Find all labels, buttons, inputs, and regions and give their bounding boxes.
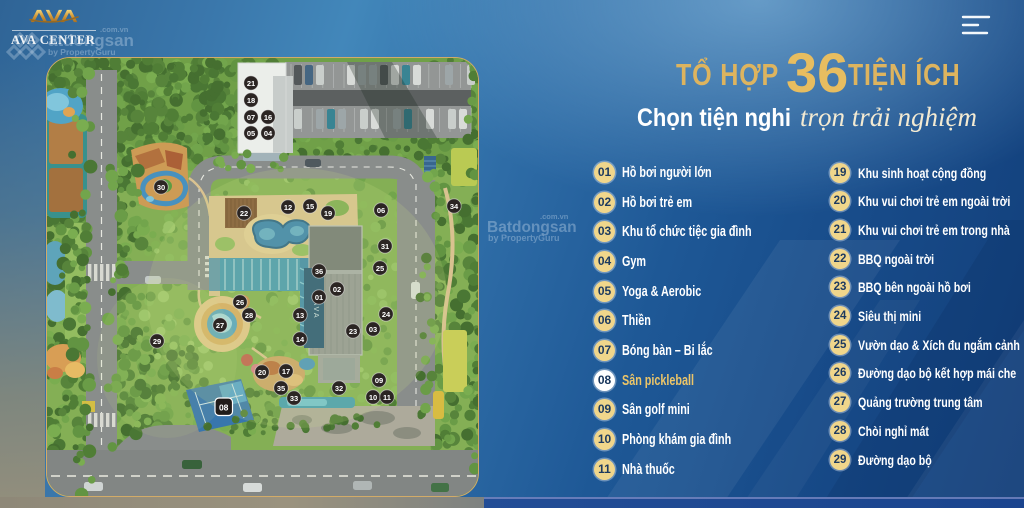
svg-text:35: 35	[276, 384, 284, 393]
svg-text:04: 04	[263, 129, 272, 138]
svg-text:14: 14	[295, 335, 304, 344]
svg-text:17: 17	[281, 367, 289, 376]
svg-text:16: 16	[263, 113, 271, 122]
svg-text:12: 12	[283, 203, 291, 212]
svg-text:07: 07	[246, 113, 254, 122]
svg-text:20: 20	[257, 368, 265, 377]
svg-text:34: 34	[449, 202, 458, 211]
svg-text:10: 10	[368, 393, 376, 402]
svg-text:30: 30	[156, 183, 164, 192]
svg-text:01: 01	[314, 293, 322, 302]
svg-text:36: 36	[314, 267, 322, 276]
svg-text:24: 24	[381, 310, 390, 319]
svg-text:21: 21	[246, 79, 254, 88]
svg-text:09: 09	[374, 376, 382, 385]
svg-text:15: 15	[305, 202, 313, 211]
svg-text:18: 18	[246, 96, 254, 105]
svg-text:33: 33	[289, 394, 297, 403]
svg-text:05: 05	[246, 129, 254, 138]
svg-text:26: 26	[235, 298, 243, 307]
svg-text:19: 19	[323, 209, 331, 218]
svg-text:31: 31	[380, 242, 388, 251]
svg-text:27: 27	[215, 321, 223, 330]
svg-text:28: 28	[244, 311, 252, 320]
svg-text:02: 02	[332, 285, 340, 294]
svg-text:23: 23	[348, 327, 356, 336]
svg-text:32: 32	[334, 384, 342, 393]
svg-text:06: 06	[376, 206, 384, 215]
svg-text:25: 25	[375, 264, 383, 273]
svg-text:08: 08	[218, 402, 228, 412]
svg-text:22: 22	[239, 209, 247, 218]
svg-text:29: 29	[152, 337, 160, 346]
svg-text:03: 03	[368, 325, 376, 334]
svg-text:11: 11	[383, 393, 391, 402]
svg-text:13: 13	[295, 311, 303, 320]
